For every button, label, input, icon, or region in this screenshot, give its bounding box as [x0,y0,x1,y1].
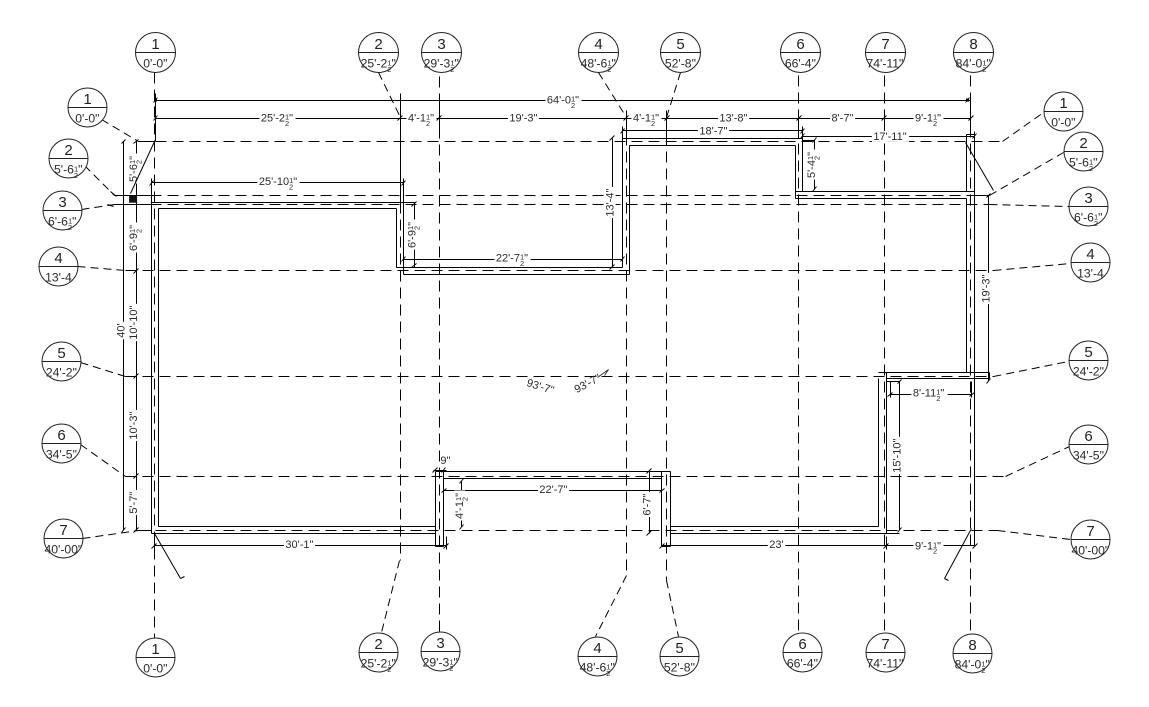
svg-text:52'-8": 52'-8" [664,661,695,675]
svg-text:66'-4": 66'-4" [785,57,816,71]
svg-text:1: 1 [151,641,159,658]
svg-text:1: 1 [83,91,91,108]
svg-text:3: 3 [436,635,444,652]
svg-text:2: 2 [64,142,72,159]
svg-text:5: 5 [675,640,683,657]
svg-text:13'-8": 13'-8" [719,113,747,125]
svg-text:52'-8": 52'-8" [665,57,696,71]
svg-text:5: 5 [1084,344,1092,361]
svg-text:18'-7": 18'-7" [699,125,727,137]
svg-text:19'-3": 19'-3" [509,113,537,125]
svg-text:6: 6 [1084,428,1092,445]
svg-text:4: 4 [1086,246,1094,263]
svg-text:8'-7": 8'-7" [831,113,853,125]
svg-text:13'-4: 13'-4 [45,271,72,285]
svg-text:10'-3": 10'-3" [128,411,140,439]
svg-text:6'-7": 6'-7" [641,494,653,516]
svg-text:17'-11": 17'-11" [873,131,906,143]
svg-text:4: 4 [593,640,601,657]
svg-text:5: 5 [57,345,65,362]
svg-text:30'-1": 30'-1" [285,539,313,551]
svg-text:7: 7 [881,636,889,653]
svg-text:2: 2 [1079,135,1087,152]
svg-text:40'-00": 40'-00" [44,543,82,557]
svg-text:2: 2 [374,636,382,653]
svg-text:74'-11": 74'-11" [866,657,903,671]
svg-text:22'-7": 22'-7" [539,484,567,496]
svg-text:3: 3 [437,36,445,53]
svg-text:3: 3 [58,194,66,211]
svg-text:66'-4": 66'-4" [787,657,818,671]
svg-text:34'-5": 34'-5" [46,448,77,462]
svg-text:3: 3 [1084,190,1092,207]
svg-text:15'-10": 15'-10" [892,438,904,472]
svg-text:1: 1 [151,36,159,53]
svg-text:0'-0": 0'-0" [143,662,167,676]
svg-text:0'-0": 0'-0" [143,57,167,71]
svg-text:24'-2": 24'-2" [1073,365,1104,379]
svg-text:19'-3": 19'-3" [981,274,993,302]
svg-text:2: 2 [374,36,382,53]
svg-text:6: 6 [57,427,65,444]
svg-text:40'-00": 40'-00" [1071,544,1109,558]
svg-text:40': 40' [116,323,128,337]
svg-text:8: 8 [968,637,976,654]
svg-text:13'-4: 13'-4 [1077,267,1104,281]
svg-text:23': 23' [769,539,783,551]
svg-text:34'-5": 34'-5" [1073,449,1104,463]
svg-text:6: 6 [798,636,806,653]
svg-text:7: 7 [1086,523,1094,540]
svg-text:13'-4": 13'-4" [605,188,617,216]
svg-text:1: 1 [1059,95,1067,112]
svg-text:10'-10": 10'-10" [128,305,140,339]
svg-text:9": 9" [440,455,450,467]
svg-text:6: 6 [796,36,804,53]
svg-text:7: 7 [881,36,889,53]
svg-text:7: 7 [59,522,67,539]
svg-text:5'-7": 5'-7" [128,492,140,514]
svg-text:0'-0": 0'-0" [1051,116,1075,130]
svg-text:4: 4 [54,250,62,267]
svg-text:24'-2": 24'-2" [46,366,77,380]
svg-text:74'-11": 74'-11" [866,57,903,71]
svg-text:0'-0": 0'-0" [75,112,99,126]
svg-text:4: 4 [594,36,602,53]
svg-text:5: 5 [676,36,684,53]
svg-text:8: 8 [969,36,977,53]
